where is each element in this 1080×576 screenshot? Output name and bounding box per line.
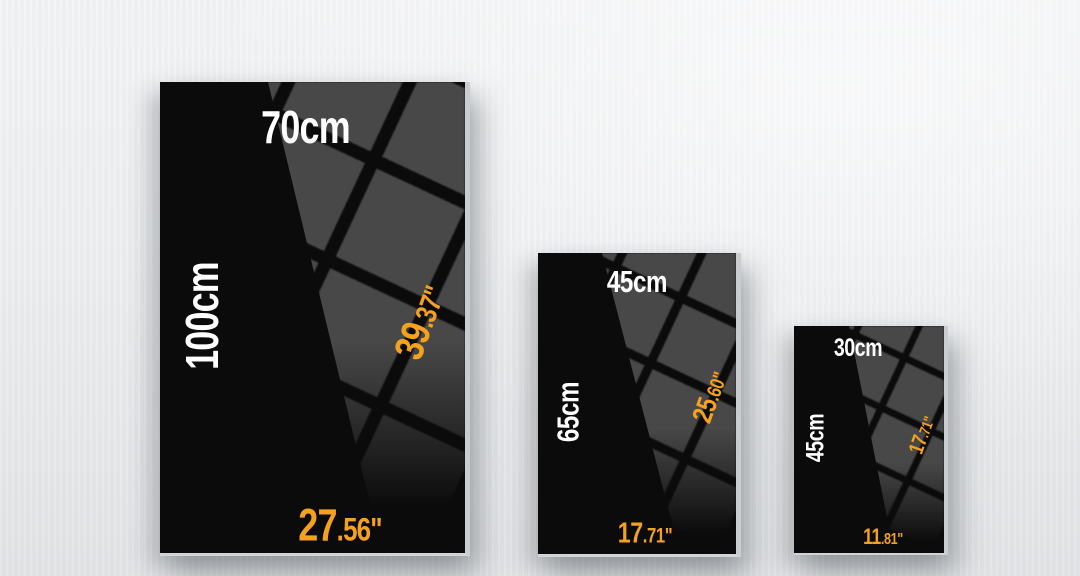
width-inches-label: 17.71" xyxy=(618,520,673,549)
height-cm-label: 65cm xyxy=(553,382,584,442)
width-inches-main: 17 xyxy=(618,518,643,550)
height-inches-label: 17.71" xyxy=(905,413,938,457)
width-inches-main: 27 xyxy=(298,500,336,551)
wall-background: 70cm 100cm 39.37" 27.56" 45cm 65cm 25.60… xyxy=(0,0,1080,576)
width-cm-label: 30cm xyxy=(808,336,908,361)
width-cm-label: 45cm xyxy=(560,266,714,297)
width-inches-decimal: .81" xyxy=(881,531,903,548)
width-inches-label: 27.56" xyxy=(298,503,382,548)
poster-size-large: 70cm 100cm 39.37" 27.56" xyxy=(160,82,470,556)
width-inches-decimal: .71" xyxy=(643,525,673,548)
height-cm-label: 45cm xyxy=(804,414,829,462)
poster-size-medium: 45cm 65cm 25.60" 17.71" xyxy=(538,253,741,557)
height-inches-label: 25.60" xyxy=(688,368,732,427)
width-inches-label: 11.81" xyxy=(863,526,903,548)
height-inches-label: 39.37" xyxy=(388,279,452,364)
height-cm-label: 100cm xyxy=(179,262,225,370)
width-inches-decimal: .56" xyxy=(337,512,382,548)
width-cm-label: 70cm xyxy=(192,104,419,150)
poster-size-small: 30cm 45cm 17.71" 11.81" xyxy=(794,326,948,555)
width-inches-main: 11 xyxy=(863,524,881,549)
